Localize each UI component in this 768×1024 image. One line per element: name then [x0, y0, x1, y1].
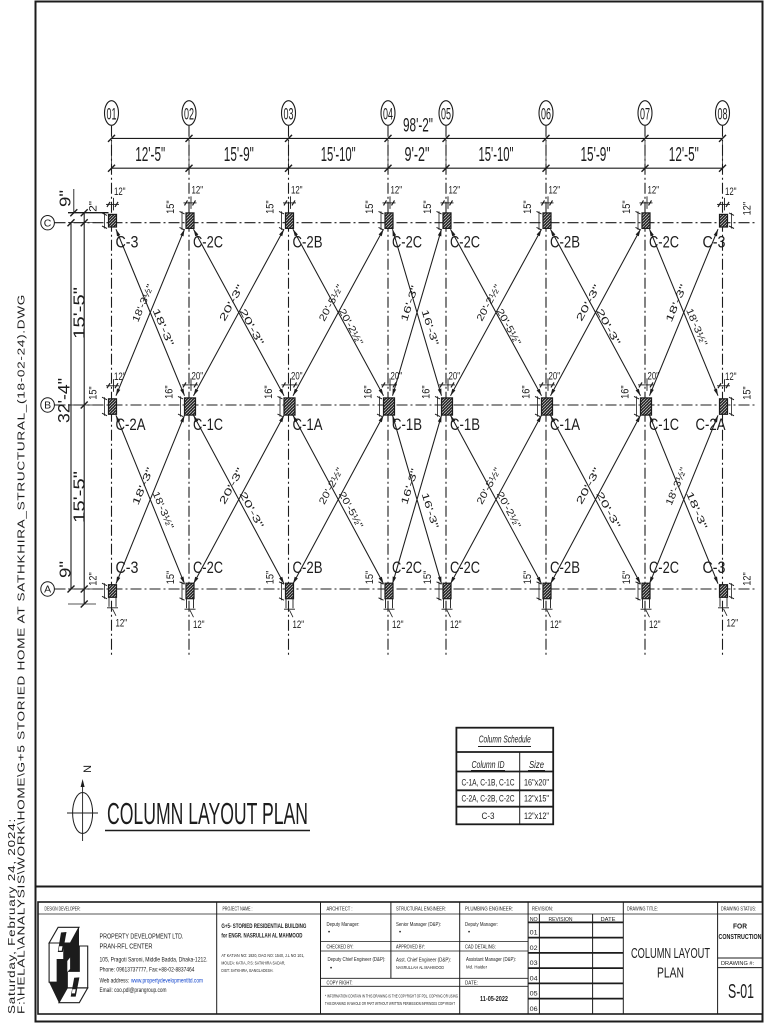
svg-text:12": 12"	[114, 186, 126, 198]
svg-text:04: 04	[530, 976, 539, 982]
svg-text:98'-2": 98'-2"	[403, 115, 433, 137]
svg-text:THIS DRAWING IN WHOLE OR PART: THIS DRAWING IN WHOLE OR PART WITHOUT WR…	[325, 1001, 455, 1006]
svg-text:15'-9": 15'-9"	[224, 144, 254, 166]
svg-text:9": 9"	[58, 561, 75, 578]
svg-text:12": 12"	[725, 186, 737, 198]
svg-text:15": 15"	[621, 200, 633, 214]
svg-text:12": 12"	[192, 184, 204, 196]
svg-text:DRAWING STATUS:: DRAWING STATUS:	[721, 907, 756, 913]
svg-text:16": 16"	[164, 385, 176, 399]
svg-text:12'-5": 12'-5"	[669, 144, 699, 166]
svg-text:NASRULLAH AL MAHMOOD: NASRULLAH AL MAHMOOD	[396, 965, 444, 971]
svg-text:Asst. Chief Engineer (D&P):: Asst. Chief Engineer (D&P):	[396, 958, 451, 964]
svg-text:•: •	[468, 930, 470, 936]
svg-text:01: 01	[107, 104, 117, 123]
svg-text:15": 15"	[165, 571, 177, 585]
svg-text:15": 15"	[422, 571, 434, 585]
svg-text:B: B	[44, 400, 51, 412]
svg-text:05: 05	[441, 104, 451, 123]
svg-text:12": 12"	[450, 619, 462, 631]
svg-text:APPROVED BY:: APPROVED BY:	[396, 945, 425, 951]
svg-text:15'-5": 15'-5"	[72, 471, 89, 523]
svg-text:15": 15"	[265, 571, 277, 585]
svg-text:12": 12"	[649, 619, 661, 631]
svg-text:Web address:: Web address:	[100, 977, 131, 984]
svg-text:9'-2": 9'-2"	[405, 144, 430, 166]
svg-text:Email: coo.pdl@prangroup.com: Email: coo.pdl@prangroup.com	[100, 987, 167, 994]
svg-text:AT KATIAN NO: 1920, DAG NO: 15: AT KATIAN NO: 1920, DAG NO: 1540, J.L NO…	[221, 953, 304, 958]
svg-text:06: 06	[530, 1007, 539, 1013]
svg-text:C-1A: C-1A	[293, 415, 324, 434]
svg-text:16": 16"	[521, 385, 533, 399]
svg-text:PROJECT NAME :: PROJECT NAME :	[223, 907, 253, 913]
svg-text:07: 07	[640, 104, 650, 123]
svg-text:Size: Size	[529, 760, 544, 771]
svg-text:20": 20"	[391, 370, 403, 382]
svg-text:DRAWING #:: DRAWING #:	[721, 961, 754, 967]
svg-text:C-2B: C-2B	[293, 558, 323, 577]
svg-text:12": 12"	[293, 619, 305, 631]
svg-text:105, Pragoti Saroni, Middle Ba: 105, Pragoti Saroni, Middle Badda, Dhaka…	[100, 957, 208, 964]
svg-text:12": 12"	[550, 619, 562, 631]
svg-text:16": 16"	[363, 385, 375, 399]
svg-text:REVISION:: REVISION:	[532, 907, 553, 913]
svg-text:DIST: SATKHIRA, BANGLADESH.: DIST: SATKHIRA, BANGLADESH.	[221, 968, 273, 973]
svg-text:C-3: C-3	[116, 558, 139, 577]
svg-text:32'-4": 32'-4"	[54, 378, 73, 423]
svg-text:12": 12"	[648, 184, 660, 196]
svg-text:DATE:: DATE:	[465, 980, 478, 986]
svg-text:15'-5": 15'-5"	[72, 287, 89, 339]
svg-text:CONSTRUCTION: CONSTRUCTION	[719, 932, 762, 941]
svg-text:15": 15"	[364, 571, 376, 585]
svg-text:C-2B: C-2B	[550, 558, 580, 577]
svg-text:12": 12"	[193, 619, 205, 631]
svg-text:C: C	[44, 217, 52, 229]
svg-text:C-3: C-3	[482, 811, 495, 822]
svg-text:CHECKED BY:: CHECKED BY:	[327, 945, 354, 951]
svg-text:C-2C: C-2C	[193, 558, 223, 577]
svg-text:05: 05	[530, 992, 539, 998]
svg-text:C-1B: C-1B	[392, 415, 422, 434]
svg-text:C-1A, C-1B, C-1C: C-1A, C-1B, C-1C	[462, 778, 515, 789]
svg-text:C-1A: C-1A	[550, 415, 581, 434]
svg-text:NO: NO	[530, 917, 538, 923]
svg-text:DRAWING TITLE:: DRAWING TITLE:	[627, 907, 658, 913]
svg-text:CAD DETALING:: CAD DETALING:	[465, 945, 496, 951]
svg-text:C-2C: C-2C	[450, 558, 480, 577]
svg-text:C-2A: C-2A	[696, 415, 727, 434]
svg-text:REVISION: REVISION	[549, 917, 573, 923]
svg-text:15'-9": 15'-9"	[581, 144, 611, 166]
svg-text:G+5- STORIED RESIDENTIAL BUILD: G+5- STORIED RESIDENTIAL BUILDING	[221, 923, 306, 930]
svg-text:* INFORMATION CONTAIN IN THIS: * INFORMATION CONTAIN IN THIS DRAWING IS…	[325, 994, 458, 999]
svg-text:12": 12"	[742, 202, 754, 216]
svg-text:C-2C: C-2C	[392, 558, 422, 577]
svg-text:15": 15"	[522, 200, 534, 214]
svg-text:Deputy Manager:: Deputy Manager:	[327, 922, 360, 928]
svg-text:PLUMBING ENGINEER:: PLUMBING ENGINEER:	[465, 907, 513, 913]
svg-text:08: 08	[718, 104, 728, 123]
svg-text:02: 02	[530, 946, 539, 952]
svg-text:12": 12"	[392, 619, 404, 631]
svg-text:A: A	[44, 584, 51, 596]
svg-text:12": 12"	[449, 184, 461, 196]
svg-text:01: 01	[530, 931, 539, 937]
svg-text:15": 15"	[364, 200, 376, 214]
svg-text:•: •	[328, 930, 330, 936]
svg-text:COPY RIGHT:: COPY RIGHT:	[327, 980, 353, 986]
svg-text:F:\HELAL\ANALYSIS\WORK\HOME\G+: F:\HELAL\ANALYSIS\WORK\HOME\G+5 STORIED …	[17, 294, 28, 1014]
svg-text:12"x15": 12"x15"	[524, 794, 549, 805]
svg-text:www.propertydevelopmentltd.com: www.propertydevelopmentltd.com	[130, 977, 203, 984]
svg-text:C-2C: C-2C	[649, 233, 679, 252]
svg-text:DESIGN DEVELOPER:: DESIGN DEVELOPER:	[45, 907, 81, 913]
svg-text:PROPERTY DEVELOPMENT LTD.: PROPERTY DEVELOPMENT LTD.	[100, 934, 184, 941]
svg-text:S-01: S-01	[728, 981, 754, 1003]
svg-text:02: 02	[184, 104, 194, 123]
svg-text:2": 2"	[88, 201, 100, 212]
svg-text:Senior Manager (D&P):: Senior Manager (D&P):	[396, 922, 441, 928]
svg-text:ARCHITECT :: ARCHITECT :	[327, 907, 353, 913]
svg-text:16": 16"	[620, 385, 632, 399]
svg-text:9": 9"	[58, 190, 75, 207]
svg-text:•: •	[330, 966, 332, 972]
svg-text:N: N	[81, 765, 93, 773]
svg-text:15": 15"	[422, 200, 434, 214]
svg-text:Assistant Manager (D&P):: Assistant Manager (D&P):	[466, 957, 516, 963]
svg-text:C-1B: C-1B	[450, 415, 480, 434]
svg-text:11-05-2022: 11-05-2022	[480, 996, 508, 1003]
svg-text:16": 16"	[263, 385, 275, 399]
svg-text:15'-10": 15'-10"	[479, 144, 514, 166]
svg-text:03: 03	[530, 961, 539, 967]
svg-text:16"x20": 16"x20"	[524, 778, 549, 789]
svg-text:15": 15"	[265, 200, 277, 214]
svg-text:C-1C: C-1C	[193, 415, 223, 434]
svg-text:MOUZA: KATIA, P.S: SATKHIRA SA: MOUZA: KATIA, P.S: SATKHIRA SADAR,	[221, 961, 285, 966]
svg-text:Column Schedule: Column Schedule	[479, 734, 531, 746]
svg-text:12": 12"	[88, 572, 100, 586]
svg-text:STRUCTURAL ENGINEER:: STRUCTURAL ENGINEER:	[396, 907, 446, 913]
svg-text:C-3: C-3	[703, 233, 726, 252]
svg-text:Column ID: Column ID	[472, 760, 505, 771]
svg-text:for ENGR. NASRULLAH AL MAHMOOD: for ENGR. NASRULLAH AL MAHMOOD	[221, 932, 302, 939]
svg-text:15": 15"	[621, 571, 633, 585]
svg-text:COLUMN LAYOUT PLAN: COLUMN LAYOUT PLAN	[107, 796, 308, 831]
svg-text:Phone: 09613737777, Fax:+88-02: Phone: 09613737777, Fax:+88-02-8837464	[100, 967, 195, 974]
svg-text:12": 12"	[291, 184, 303, 196]
svg-text:12": 12"	[549, 184, 561, 196]
svg-text:12": 12"	[727, 617, 739, 629]
svg-text:Deputy Chief Engineer (D&P):: Deputy Chief Engineer (D&P):	[328, 957, 386, 963]
svg-text:Deputy Manager:: Deputy Manager:	[465, 922, 498, 928]
svg-text:12"x12": 12"x12"	[524, 811, 549, 822]
svg-text:DATE: DATE	[601, 917, 616, 923]
svg-text:12'-5": 12'-5"	[135, 144, 165, 166]
svg-text:15": 15"	[522, 571, 534, 585]
svg-text:15": 15"	[88, 386, 100, 400]
svg-text:15": 15"	[165, 200, 177, 214]
svg-text:15": 15"	[742, 386, 754, 400]
svg-text:PRAN-RFL CENTER: PRAN-RFL CENTER	[100, 944, 153, 951]
svg-text:COLUMN LAYOUT: COLUMN LAYOUT	[631, 945, 710, 962]
svg-text:Md. Haider: Md. Haider	[466, 965, 487, 971]
svg-text:12": 12"	[116, 617, 128, 629]
svg-text:15'-10": 15'-10"	[321, 144, 356, 166]
svg-text:PLAN: PLAN	[657, 964, 684, 981]
svg-text:04: 04	[383, 104, 393, 123]
svg-text:12": 12"	[391, 184, 403, 196]
svg-text:06: 06	[541, 104, 551, 123]
svg-text:C-2A, C-2B, C-2C: C-2A, C-2B, C-2C	[462, 794, 515, 805]
svg-text:•: •	[399, 930, 401, 936]
svg-text:FOR: FOR	[733, 922, 748, 931]
svg-text:12": 12"	[725, 371, 737, 383]
svg-text:16": 16"	[421, 385, 433, 399]
svg-text:03: 03	[284, 104, 294, 123]
svg-text:12": 12"	[742, 572, 754, 586]
